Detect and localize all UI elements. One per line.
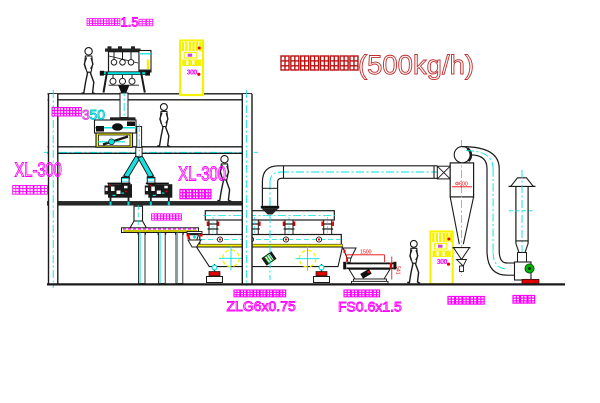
- svg-text:FS0.6x1.5: FS0.6x1.5: [338, 299, 402, 315]
- svg-text:Φ600: Φ600: [455, 182, 468, 188]
- svg-text:300: 300: [437, 259, 448, 266]
- svg-text:50: 50: [90, 106, 106, 122]
- svg-text:XL-300: XL-300: [178, 163, 226, 185]
- svg-text:ZLG6x0.75: ZLG6x0.75: [227, 298, 296, 314]
- svg-text:1500: 1500: [360, 250, 372, 256]
- svg-text:(500kg/h): (500kg/h): [358, 50, 474, 80]
- svg-text:300: 300: [187, 69, 198, 76]
- svg-text:XL-300: XL-300: [15, 159, 62, 182]
- svg-text:1.5: 1.5: [121, 14, 139, 29]
